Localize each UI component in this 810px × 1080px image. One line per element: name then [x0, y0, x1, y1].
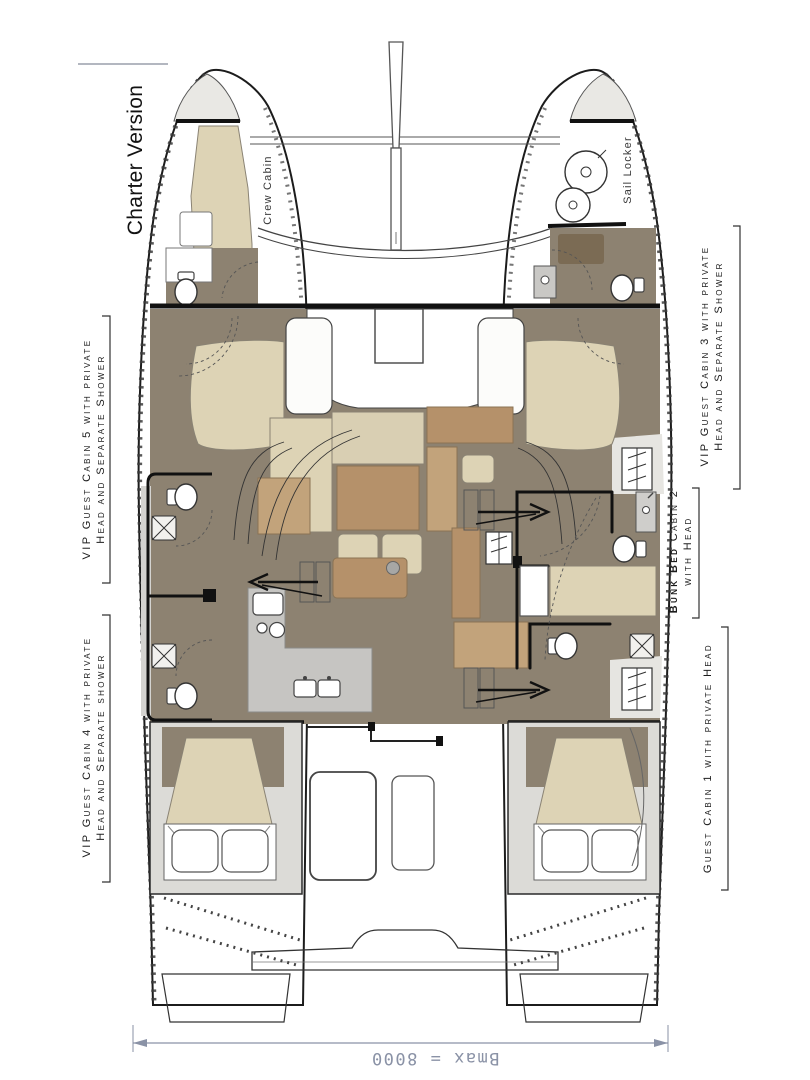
- head-forward-left: [166, 248, 258, 308]
- boat-floorplan-page: Charter Version Crew Cabin Sail Locker V…: [0, 0, 810, 1080]
- title-rule: [78, 63, 168, 65]
- page-title: Charter Version: [124, 85, 148, 235]
- cabin5-label: VIP Guest Cabin 5 with private Head and …: [80, 339, 108, 560]
- cabin4-label: VIP Guest Cabin 4 with private Head and …: [80, 637, 108, 858]
- crew-cabin-label: Crew Cabin: [262, 155, 274, 224]
- cabin5-label-line2: Head and Separate Shower: [94, 339, 108, 560]
- sail-locker-label: Sail Locker: [622, 136, 634, 204]
- cabin4-label-line1: VIP Guest Cabin 4 with private: [80, 637, 94, 858]
- cabin2-label-rest: Cabin 2: [668, 489, 680, 547]
- cabin2-label: Bunk Bed Cabin 2 with Head: [667, 489, 695, 614]
- mast-and-longeron: [389, 42, 403, 250]
- cabin2-label-line2: with Head: [681, 489, 695, 614]
- cabin4-label-line2: Head and Separate shower: [94, 637, 108, 858]
- cabin3-label-line1: VIP Guest Cabin 3 with private: [698, 246, 712, 467]
- cabin5-label-line1: VIP Guest Cabin 5 with private: [80, 339, 94, 560]
- cabin3-label: VIP Guest Cabin 3 with private Head and …: [698, 246, 726, 467]
- aft-cabin-port: [150, 722, 304, 894]
- head-forward-right: [534, 228, 656, 306]
- cabin2-label-bold: Bunk Bed: [668, 547, 680, 614]
- beam-dimension-label: Bmax = 8000: [370, 1048, 499, 1068]
- cabin2-label-line1: Bunk Bed Cabin 2: [667, 489, 681, 614]
- cabin1-label: Guest Cabin 1 with private Head: [701, 643, 715, 873]
- cabin3-label-line2: Head and Separate Shower: [712, 246, 726, 467]
